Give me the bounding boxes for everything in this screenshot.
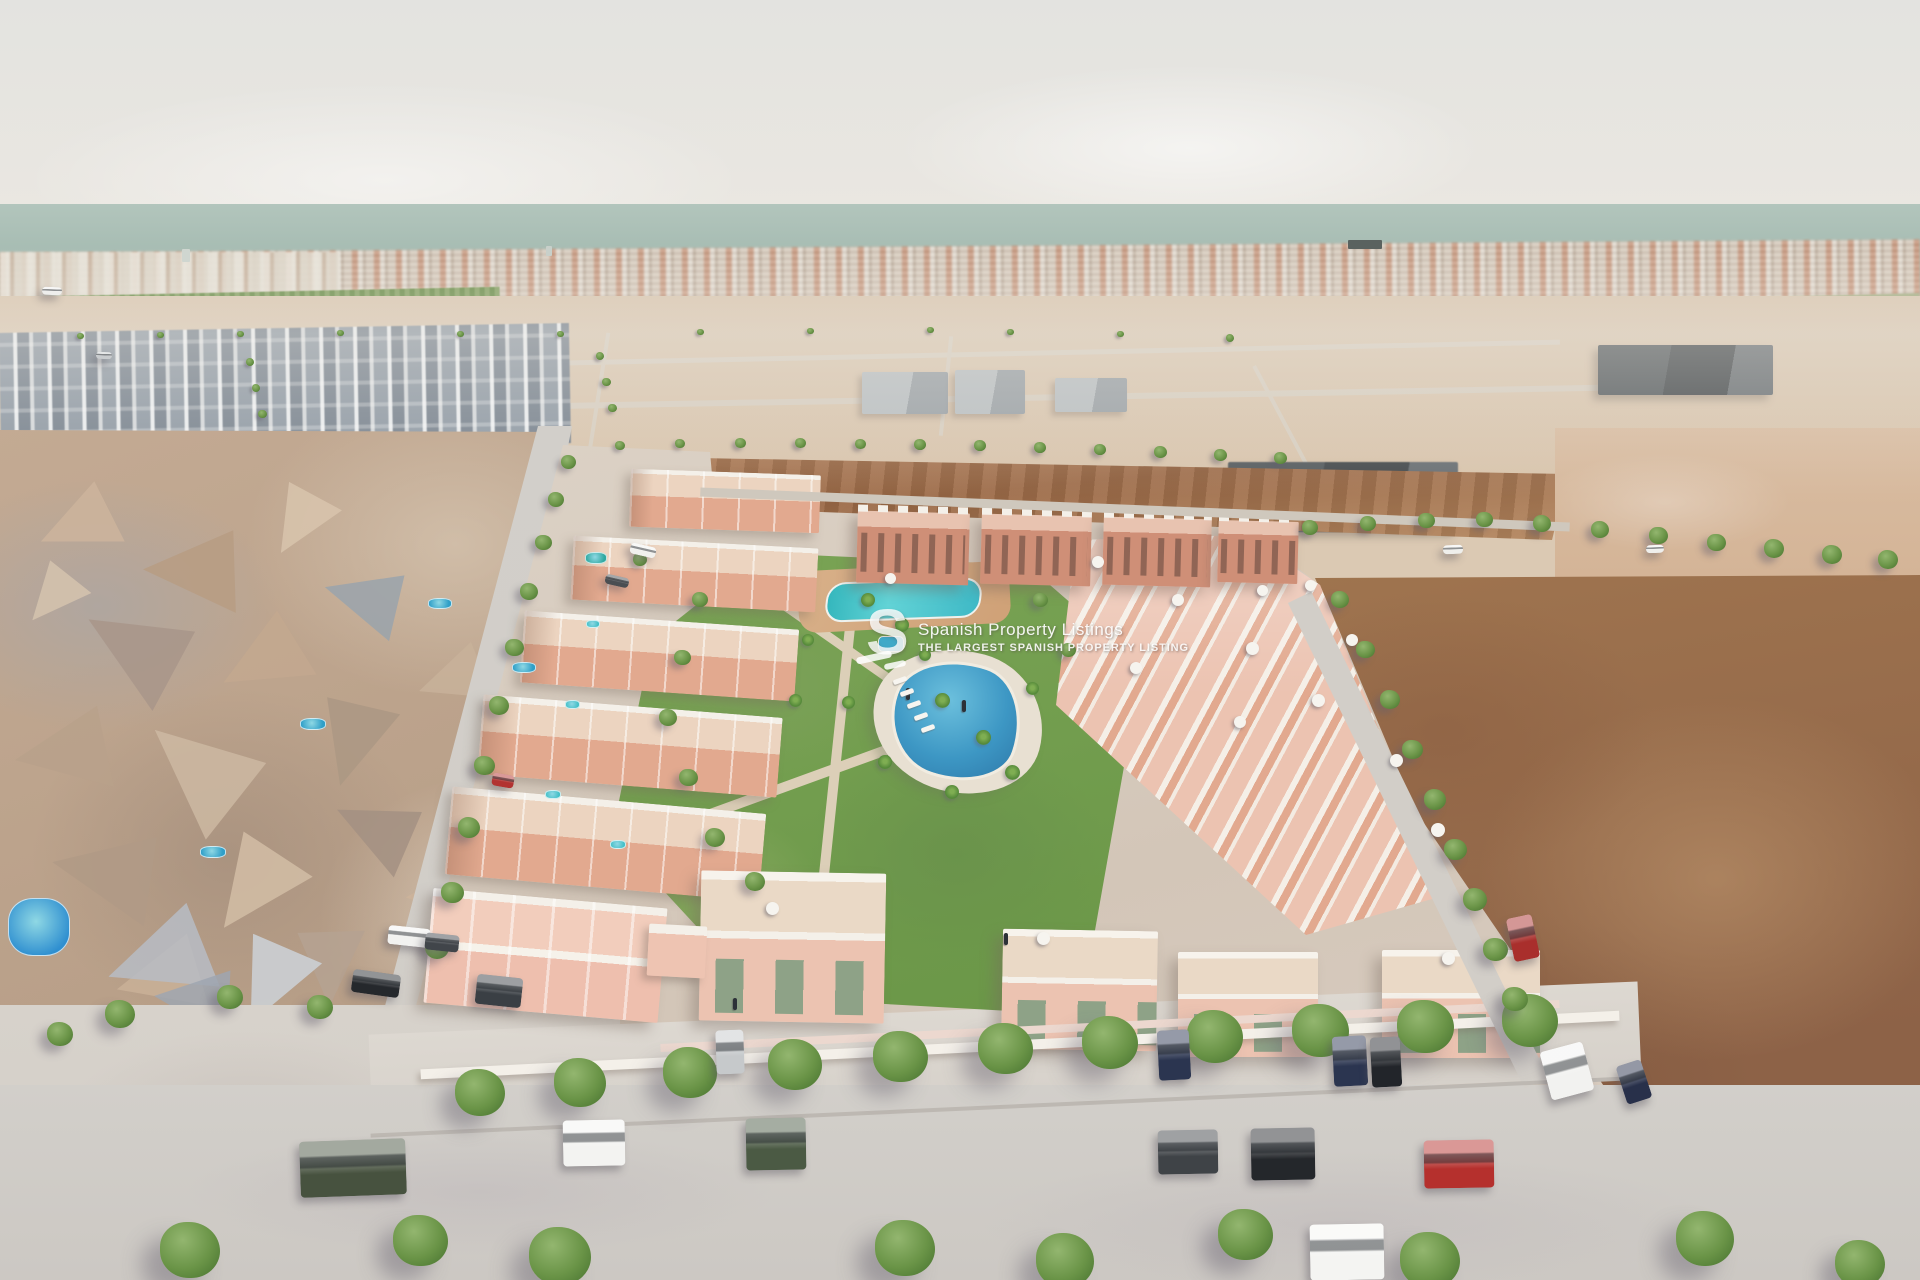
- parked-car: [299, 1138, 407, 1198]
- tree: [489, 696, 509, 715]
- tree: [768, 1039, 822, 1090]
- parked-car: [1443, 545, 1463, 555]
- backyard-pool: [428, 598, 452, 609]
- tree: [1533, 515, 1551, 532]
- patio-umbrella: [1092, 556, 1104, 568]
- patio-umbrella: [1257, 585, 1268, 596]
- tree: [77, 333, 84, 340]
- patio-umbrella: [766, 902, 779, 915]
- parked-car: [1332, 1035, 1369, 1087]
- backyard-pool: [610, 840, 626, 849]
- tree: [457, 331, 464, 338]
- tree: [974, 440, 986, 451]
- parked-car: [1158, 1129, 1219, 1174]
- tree: [1094, 444, 1106, 455]
- tree: [307, 995, 333, 1019]
- tree: [160, 1222, 220, 1278]
- parked-car: [351, 969, 402, 998]
- patio-umbrella: [1172, 594, 1184, 606]
- tree: [217, 985, 243, 1009]
- tree: [535, 535, 552, 551]
- tree: [105, 1000, 135, 1028]
- tree: [615, 441, 625, 450]
- parked-car: [563, 1119, 626, 1166]
- sun-lounger: [921, 724, 936, 733]
- tree: [1154, 446, 1167, 458]
- patio-umbrella: [1312, 694, 1325, 707]
- tree: [807, 328, 814, 335]
- boat: [546, 246, 552, 256]
- tree: [1424, 789, 1446, 810]
- tree: [1302, 520, 1318, 535]
- palm-tree: [1005, 765, 1020, 780]
- tree: [1402, 740, 1423, 760]
- tree: [554, 1058, 606, 1107]
- tree: [663, 1047, 717, 1098]
- backyard-pool: [300, 718, 326, 730]
- tree: [529, 1227, 591, 1280]
- tree: [1218, 1209, 1273, 1261]
- tree: [1226, 334, 1234, 342]
- tree: [458, 817, 480, 838]
- boat: [182, 249, 190, 262]
- tree: [608, 404, 617, 412]
- backyard-pool: [512, 662, 536, 673]
- patio-umbrella: [1305, 580, 1316, 591]
- backyard-pool: [200, 846, 226, 858]
- patio-umbrella: [1130, 662, 1142, 674]
- tree: [548, 492, 564, 507]
- parked-car: [96, 352, 112, 360]
- tree: [596, 352, 604, 360]
- tree: [1878, 550, 1898, 569]
- tree: [474, 756, 495, 776]
- tree: [47, 1022, 73, 1046]
- palm-tree: [1026, 682, 1039, 695]
- palm-tree: [878, 755, 892, 769]
- tree: [927, 327, 934, 334]
- patio-umbrella: [1390, 754, 1403, 767]
- parked-car: [42, 287, 62, 296]
- parked-car: [1157, 1029, 1192, 1081]
- watermark: S Spanish Property Listings THE LARGEST …: [840, 592, 1120, 676]
- palm-tree: [789, 694, 802, 707]
- tree: [1036, 1233, 1094, 1280]
- tree: [1274, 452, 1287, 464]
- person: [733, 998, 737, 1010]
- tree: [914, 439, 926, 450]
- parked-car: [746, 1117, 807, 1170]
- tree: [679, 769, 698, 787]
- tree: [674, 650, 691, 666]
- tree: [1007, 329, 1014, 336]
- parked-car: [1539, 1041, 1594, 1101]
- backyard-pool: [586, 620, 600, 628]
- parked-car: [1370, 1036, 1403, 1088]
- parked-car: [604, 573, 630, 588]
- tree: [978, 1023, 1033, 1075]
- tree: [246, 358, 254, 366]
- backyard-pool: [585, 552, 607, 564]
- backyard-pool: [8, 898, 70, 956]
- tree: [1591, 521, 1609, 538]
- tree: [561, 455, 576, 469]
- tree: [1356, 641, 1375, 659]
- palm-tree: [802, 634, 814, 646]
- parked-car: [491, 772, 515, 789]
- tree: [557, 331, 564, 338]
- parked-car: [475, 974, 524, 1009]
- tree: [705, 828, 725, 847]
- tree: [1397, 1000, 1454, 1054]
- patio-umbrella: [1346, 634, 1358, 646]
- tree: [873, 1031, 928, 1083]
- tree: [1380, 690, 1400, 709]
- tree: [1463, 888, 1487, 911]
- parked-car: [424, 932, 460, 952]
- patio-umbrella: [1442, 952, 1455, 965]
- parked-car: [1251, 1127, 1316, 1180]
- tree: [795, 438, 806, 448]
- palm-tree: [976, 730, 991, 745]
- tree: [602, 378, 611, 386]
- watermark-subtitle: THE LARGEST SPANISH PROPERTY LISTING: [918, 642, 1189, 654]
- tree: [1360, 516, 1376, 531]
- palm-tree: [842, 696, 855, 709]
- tree: [1400, 1232, 1460, 1280]
- tree: [692, 592, 708, 607]
- tree: [157, 332, 164, 339]
- tree: [1822, 545, 1842, 564]
- tree: [659, 709, 677, 726]
- tree: [441, 882, 464, 904]
- tree: [1764, 539, 1784, 558]
- parked-car: [715, 1030, 745, 1075]
- tree: [697, 329, 704, 336]
- palm-tree: [935, 693, 950, 708]
- tree: [393, 1215, 448, 1267]
- tree: [1331, 591, 1349, 608]
- tree: [1444, 839, 1467, 861]
- tree: [675, 439, 685, 448]
- parked-car: [1506, 914, 1541, 962]
- tree: [745, 872, 765, 891]
- palm-tree: [945, 785, 959, 799]
- boat: [1348, 240, 1382, 249]
- patio-umbrella: [885, 573, 896, 584]
- tree: [1483, 938, 1508, 962]
- tree: [855, 439, 866, 449]
- tree: [875, 1220, 935, 1276]
- tree: [520, 583, 538, 600]
- parked-car: [1310, 1223, 1385, 1280]
- tree: [258, 410, 267, 418]
- sun-lounger: [907, 700, 922, 709]
- patio-umbrella: [1234, 716, 1246, 728]
- tree: [1502, 987, 1528, 1011]
- tree: [1187, 1010, 1243, 1063]
- person: [1004, 933, 1008, 945]
- backyard-pool: [545, 790, 561, 799]
- tree: [735, 438, 746, 448]
- patio-umbrella: [1037, 932, 1050, 945]
- tree: [252, 384, 260, 392]
- tree: [1649, 527, 1668, 545]
- tree: [1418, 513, 1435, 529]
- tree: [337, 330, 344, 337]
- tree: [1707, 534, 1726, 552]
- patio-umbrella: [1246, 642, 1259, 655]
- patio-umbrella: [1431, 823, 1445, 837]
- tree: [1214, 449, 1227, 461]
- watermark-title: Spanish Property Listings: [918, 620, 1123, 640]
- sun-lounger: [893, 676, 908, 685]
- aerial-render-of-residential-development: S Spanish Property Listings THE LARGEST …: [0, 0, 1920, 1280]
- tree: [455, 1069, 505, 1116]
- backyard-pool: [565, 700, 580, 709]
- tree: [1034, 442, 1046, 453]
- tree: [1117, 331, 1124, 338]
- tree: [1082, 1016, 1138, 1069]
- parked-car: [1646, 545, 1664, 554]
- tree: [1835, 1240, 1885, 1280]
- parked-car: [1424, 1139, 1495, 1188]
- tree: [1676, 1211, 1734, 1266]
- tree: [237, 331, 244, 338]
- sun-lounger: [914, 712, 929, 721]
- tree: [1476, 512, 1493, 528]
- parked-car: [1615, 1059, 1652, 1105]
- tree: [505, 639, 524, 657]
- person: [962, 700, 966, 712]
